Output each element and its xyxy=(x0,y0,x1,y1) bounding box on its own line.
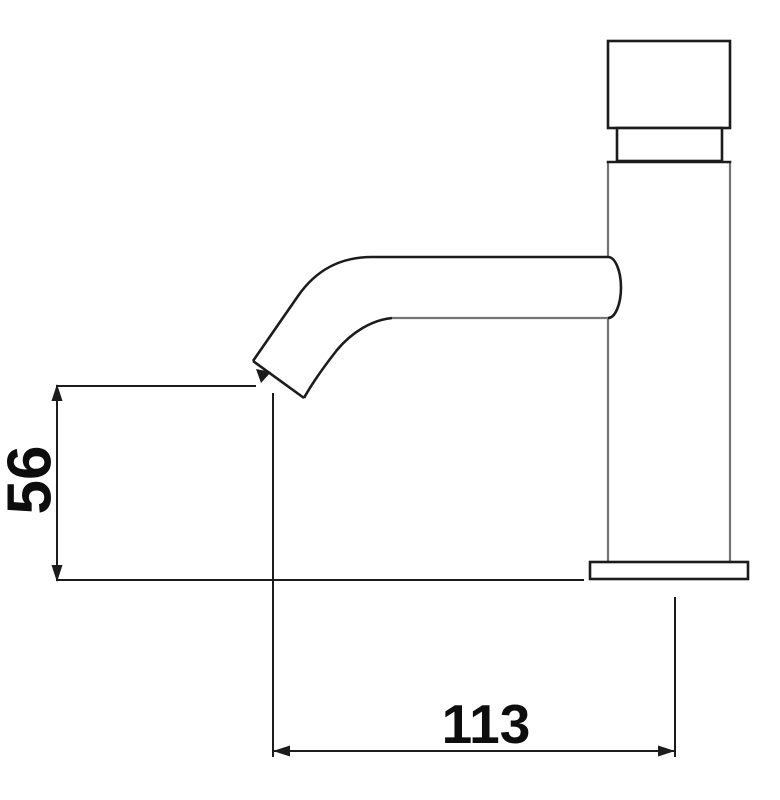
dimension-lines xyxy=(56,386,675,757)
reach-dimension-label: 113 xyxy=(442,693,531,755)
arrowhead-right-icon xyxy=(658,746,675,757)
faucet-drawing xyxy=(253,41,748,579)
spout-top-edge xyxy=(253,257,608,361)
height-dimension-label: 56 xyxy=(0,446,65,515)
handle-outline xyxy=(608,41,730,128)
arrowhead-left-icon xyxy=(273,746,290,757)
faucet-primary-outline xyxy=(253,41,748,579)
collar-outline xyxy=(617,128,722,161)
drawing-page: 56 113 xyxy=(0,0,780,800)
tap-technical-drawing-canvas: 56 113 xyxy=(0,0,780,800)
dimension-annotations: 56 113 xyxy=(0,369,675,757)
base-flange-outline xyxy=(590,562,748,579)
dimension-labels: 56 113 xyxy=(0,446,530,755)
dimension-arrowheads xyxy=(52,369,676,757)
spout-end-cap xyxy=(608,257,621,318)
faucet-secondary-lines xyxy=(392,162,746,570)
spout-lower-curve xyxy=(304,318,392,398)
